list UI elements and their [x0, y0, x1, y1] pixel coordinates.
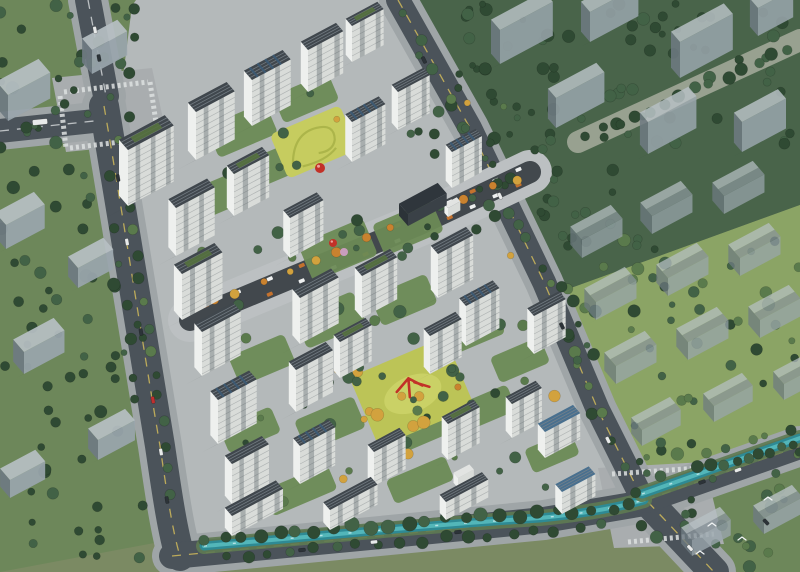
tree: [408, 333, 420, 345]
tree: [537, 208, 545, 216]
tree: [627, 84, 639, 96]
tree: [413, 406, 423, 416]
tree: [479, 1, 485, 7]
car: [298, 548, 305, 552]
tree: [486, 89, 497, 100]
tree: [698, 278, 708, 288]
tree: [352, 377, 361, 386]
tree: [276, 163, 284, 171]
side-facade: [442, 417, 448, 460]
tree: [399, 9, 407, 17]
tree: [289, 526, 300, 537]
tree: [407, 130, 415, 138]
tree: [558, 231, 567, 240]
tree: [13, 297, 23, 307]
side-facade: [424, 329, 430, 374]
tree: [0, 57, 8, 67]
tree: [45, 287, 52, 294]
side-facade: [392, 85, 398, 130]
tree: [530, 505, 544, 519]
tree: [430, 149, 440, 159]
tree: [547, 280, 555, 288]
tree: [394, 538, 405, 549]
tree: [63, 164, 74, 175]
window-column: [166, 127, 171, 185]
tree: [243, 551, 255, 563]
tree: [7, 181, 20, 194]
tree: [159, 416, 169, 426]
tree: [482, 155, 488, 161]
tree: [43, 381, 53, 391]
tree: [573, 356, 582, 365]
tree: [659, 31, 666, 38]
side-facade: [355, 268, 362, 318]
tree: [632, 241, 641, 250]
side-facade: [446, 145, 452, 188]
tree: [658, 372, 666, 380]
tree: [456, 71, 463, 78]
masterplan-aerial-rendering: [0, 0, 800, 572]
tree: [542, 484, 549, 491]
tree: [753, 448, 764, 459]
tree: [600, 133, 609, 142]
tree: [503, 208, 514, 219]
tree: [684, 394, 692, 402]
tree: [694, 304, 704, 314]
tree: [489, 182, 497, 190]
tree: [629, 111, 641, 123]
tree: [438, 391, 449, 402]
tree: [85, 414, 92, 421]
tree: [507, 252, 514, 259]
side-facade: [431, 246, 438, 298]
tree: [586, 408, 598, 420]
tree: [50, 0, 63, 12]
tree: [127, 224, 138, 235]
tree: [549, 390, 561, 402]
tree: [111, 3, 120, 12]
tree: [130, 395, 139, 404]
tree: [744, 453, 754, 463]
side-facade: [506, 397, 512, 438]
tree: [688, 286, 699, 297]
tree: [38, 443, 45, 450]
tree: [616, 120, 625, 129]
tree: [514, 220, 524, 230]
tree: [628, 305, 641, 318]
tree: [782, 45, 792, 55]
tree: [585, 382, 593, 390]
tree: [163, 463, 172, 472]
tree: [78, 455, 86, 463]
tree: [339, 475, 347, 483]
side-facade: [168, 199, 176, 256]
side-facade: [227, 166, 234, 216]
tree: [416, 537, 428, 549]
tree: [20, 255, 30, 265]
tree: [627, 20, 638, 31]
tree: [124, 14, 131, 21]
tree: [712, 113, 722, 123]
tree: [691, 460, 704, 473]
tree: [263, 550, 271, 558]
tree: [145, 346, 156, 357]
tree: [777, 442, 785, 450]
tree: [681, 510, 690, 519]
tree: [361, 416, 368, 423]
tree: [462, 530, 475, 543]
side-facade: [346, 19, 352, 62]
tree: [604, 90, 616, 102]
tree: [258, 415, 264, 421]
tree: [353, 245, 359, 251]
tree: [464, 100, 470, 106]
tree: [140, 298, 148, 306]
tree: [84, 111, 91, 118]
tree: [111, 374, 120, 383]
tree: [528, 109, 535, 116]
tree: [630, 488, 640, 498]
tree: [462, 8, 474, 20]
tree: [751, 344, 763, 356]
tree: [496, 468, 503, 475]
tree: [134, 552, 145, 563]
tree: [455, 84, 462, 91]
tree: [609, 189, 616, 196]
tree: [29, 166, 40, 177]
tree: [538, 145, 547, 154]
side-facade: [174, 265, 182, 320]
tree: [789, 441, 797, 449]
side-facade: [345, 114, 352, 162]
tree: [307, 526, 320, 539]
tree: [476, 186, 483, 193]
tree: [479, 63, 491, 75]
tree: [518, 320, 529, 331]
tree: [599, 262, 608, 271]
tree: [410, 397, 417, 404]
tree: [575, 321, 581, 327]
side-facade: [293, 438, 300, 484]
tree: [70, 86, 78, 94]
tree: [455, 372, 464, 381]
tree: [549, 63, 558, 72]
tree: [93, 553, 100, 560]
tree: [424, 224, 431, 231]
tree: [417, 416, 430, 429]
tree: [552, 166, 563, 177]
tree: [144, 324, 154, 334]
tree: [133, 251, 144, 262]
tree: [124, 112, 135, 123]
tree: [667, 317, 674, 324]
tree: [426, 63, 438, 75]
tree: [537, 62, 549, 74]
tree: [109, 223, 119, 233]
tree: [111, 351, 120, 360]
tree: [461, 513, 471, 523]
tree: [397, 392, 405, 400]
tree: [334, 116, 340, 122]
tree: [586, 506, 596, 516]
tree: [133, 272, 145, 284]
tree: [78, 224, 89, 235]
tree: [107, 93, 114, 100]
tree: [469, 62, 475, 68]
tree: [254, 245, 263, 254]
tree: [199, 535, 209, 545]
tree: [350, 539, 360, 549]
tree: [607, 164, 619, 176]
tree: [122, 300, 132, 310]
tree: [779, 138, 790, 149]
tree: [51, 417, 61, 427]
tree: [125, 333, 137, 345]
tree: [338, 230, 346, 238]
tree: [578, 115, 586, 123]
aerial-render-stage: Aerial bird's-eye rendering of a residen…: [0, 0, 800, 572]
window-column: [454, 495, 459, 516]
tree: [513, 103, 521, 111]
tree: [414, 127, 422, 135]
side-facade: [194, 323, 202, 376]
tree: [514, 115, 520, 121]
tree: [39, 304, 47, 312]
tree: [471, 224, 481, 234]
tree: [74, 527, 83, 536]
tree: [513, 176, 522, 185]
tree: [648, 273, 657, 282]
tree: [241, 333, 251, 343]
window-column: [136, 143, 141, 201]
tree: [44, 406, 53, 415]
tree: [486, 139, 494, 147]
tree: [521, 377, 529, 385]
tree: [556, 281, 567, 292]
tree: [632, 263, 644, 275]
tree: [644, 454, 650, 460]
tree: [80, 172, 87, 179]
tree: [733, 457, 742, 466]
tree: [546, 135, 556, 145]
tree: [539, 265, 547, 273]
tree: [709, 475, 716, 482]
tree: [789, 338, 795, 344]
tree: [0, 361, 9, 370]
tree: [364, 521, 378, 535]
tree: [47, 488, 59, 500]
tree: [529, 526, 539, 536]
tree: [623, 498, 635, 510]
tree: [86, 193, 95, 202]
tree: [701, 448, 711, 458]
tree: [548, 527, 559, 538]
tree: [80, 352, 88, 360]
tree: [455, 384, 462, 391]
tree: [474, 508, 488, 522]
tree: [51, 294, 62, 305]
tree: [418, 516, 429, 527]
tree: [672, 0, 679, 7]
tree: [621, 462, 630, 471]
tree: [65, 372, 75, 382]
tree: [79, 551, 87, 559]
tree: [687, 439, 696, 448]
side-facade: [527, 308, 534, 354]
tree: [461, 124, 469, 132]
tree: [230, 289, 240, 299]
tree: [379, 373, 386, 380]
tree: [483, 533, 492, 542]
tree: [765, 48, 778, 61]
side-facade: [244, 71, 252, 126]
tree: [721, 444, 730, 453]
tree: [669, 302, 675, 308]
tree: [624, 131, 631, 138]
tree: [723, 72, 736, 85]
tree: [500, 103, 506, 109]
tree: [123, 67, 135, 79]
tree: [275, 526, 288, 539]
tree: [580, 207, 590, 217]
tree: [509, 529, 519, 539]
tree: [67, 12, 74, 19]
tree: [394, 305, 407, 318]
tree: [464, 33, 475, 44]
sphere-highlight: [317, 165, 320, 168]
tree: [446, 94, 456, 104]
tree: [107, 278, 120, 291]
tree: [60, 99, 69, 108]
tree: [764, 548, 773, 557]
tree: [609, 505, 619, 515]
tree: [433, 106, 444, 117]
tree: [354, 225, 365, 236]
tree: [658, 12, 668, 22]
tree: [55, 75, 62, 82]
tree: [333, 542, 343, 552]
tree: [786, 425, 797, 436]
tree: [671, 448, 684, 461]
red-sphere-sculpture: [315, 163, 325, 173]
tree: [584, 342, 590, 348]
tree: [628, 326, 635, 333]
tree: [761, 433, 767, 439]
tree: [493, 509, 507, 523]
tree: [520, 232, 530, 242]
tree: [718, 460, 729, 471]
red-sphere-sculpture: [329, 239, 337, 247]
tree: [785, 129, 794, 138]
tree: [221, 532, 231, 542]
tree: [688, 496, 695, 503]
tree: [29, 519, 36, 526]
tree: [513, 510, 527, 524]
tree: [597, 408, 607, 418]
tree: [771, 469, 780, 478]
tree: [548, 196, 559, 207]
tree: [431, 232, 439, 240]
tree: [29, 539, 38, 548]
tree: [222, 552, 230, 560]
tree: [704, 458, 717, 471]
tree: [755, 58, 765, 68]
tree: [548, 71, 560, 83]
side-facade: [301, 42, 308, 92]
tree: [704, 79, 713, 88]
tree: [734, 317, 743, 326]
car: [454, 530, 461, 534]
tree: [735, 63, 748, 76]
window-column: [471, 486, 476, 507]
tree: [287, 268, 293, 274]
tree: [362, 233, 371, 242]
side-facade: [188, 103, 196, 160]
tree: [235, 532, 246, 543]
tree: [726, 360, 736, 370]
tree: [656, 438, 666, 448]
tree: [490, 388, 499, 397]
tree: [489, 210, 501, 222]
tree: [381, 520, 395, 534]
tree: [587, 348, 599, 360]
tree: [596, 519, 606, 529]
tree: [562, 30, 575, 43]
tree: [272, 226, 284, 238]
tree: [416, 35, 427, 46]
tree: [138, 501, 148, 511]
tree: [10, 259, 18, 267]
tree: [292, 161, 301, 170]
tree: [34, 267, 46, 279]
tree: [403, 243, 413, 253]
tree: [312, 256, 321, 265]
tree: [254, 530, 268, 544]
tree: [51, 106, 60, 115]
tree: [651, 246, 658, 253]
tree: [17, 25, 26, 34]
tree: [765, 448, 775, 458]
tree: [79, 369, 88, 378]
tree: [767, 30, 779, 42]
tree: [617, 84, 626, 93]
tree: [104, 170, 115, 181]
tree: [129, 374, 137, 382]
tree: [483, 200, 494, 211]
tree: [130, 33, 139, 42]
side-facade: [289, 362, 296, 412]
tree: [94, 405, 107, 418]
tree: [115, 261, 121, 267]
tree: [49, 136, 62, 149]
tree: [576, 523, 586, 533]
tree: [308, 542, 319, 553]
tree: [261, 278, 268, 285]
tree: [636, 458, 643, 465]
tree: [371, 408, 384, 421]
tree: [448, 365, 456, 373]
side-facade: [283, 210, 290, 258]
tree: [650, 22, 661, 33]
tree: [95, 535, 105, 545]
tree: [331, 247, 341, 257]
tree: [21, 122, 32, 133]
tree: [106, 362, 116, 372]
side-facade: [119, 140, 128, 206]
tree: [387, 224, 394, 231]
tree: [644, 45, 656, 57]
window-column: [151, 135, 156, 193]
